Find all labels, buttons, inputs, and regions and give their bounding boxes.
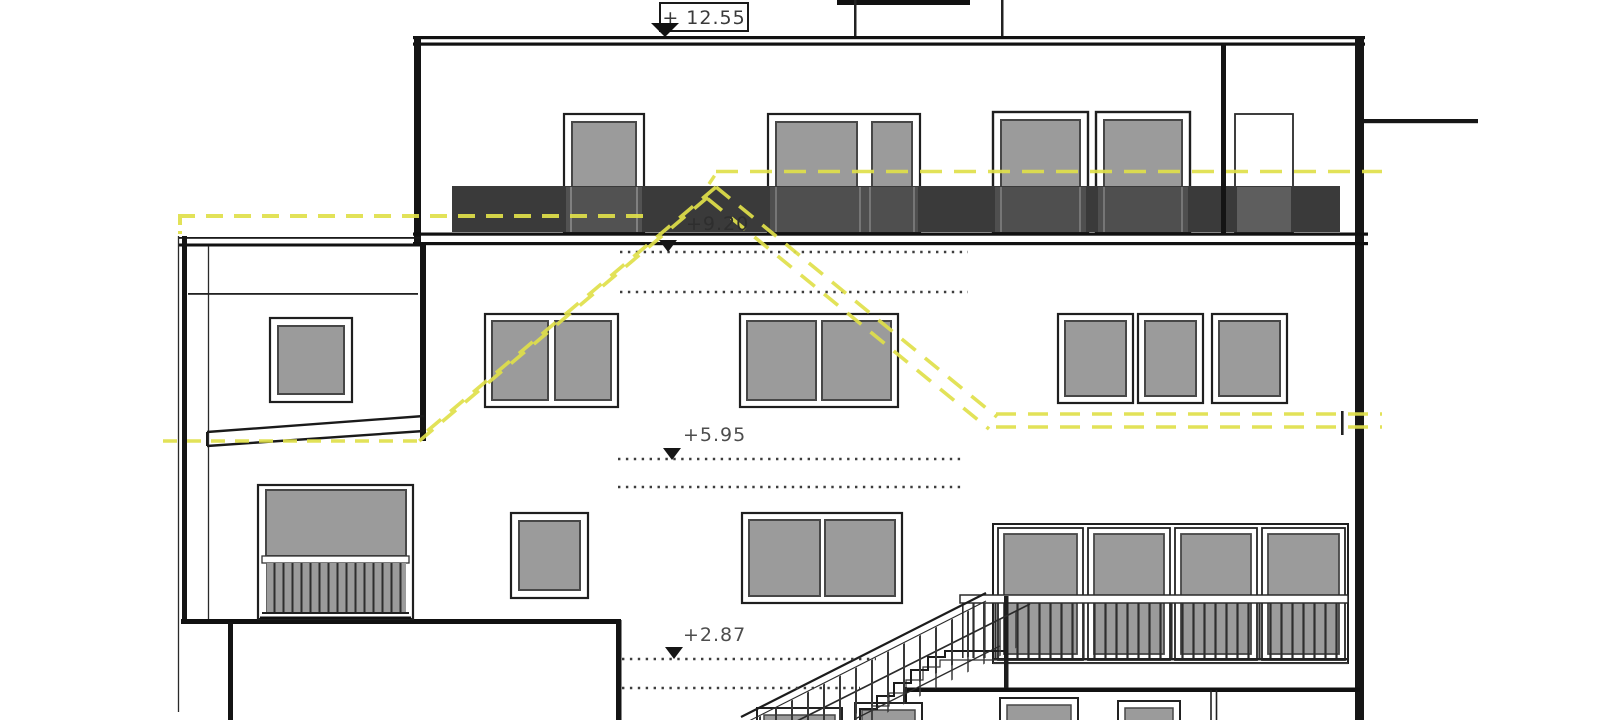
annex-balcony <box>258 485 413 619</box>
annex-window <box>270 318 352 402</box>
building-elevation-svg: + 12.55 +9.20 +5.95 +2.87 <box>0 0 1600 720</box>
level-attic-label: +9.20 <box>686 213 749 235</box>
level-roof: + 12.55 <box>651 3 748 37</box>
window-pair-3 <box>742 513 902 603</box>
roof-slab <box>413 36 1365 39</box>
window-pair-2 <box>740 314 898 407</box>
window-triple <box>1058 314 1287 403</box>
right-wall <box>1355 36 1364 720</box>
roof-structure-top-edge <box>837 0 970 5</box>
elevation-drawing-canvas: + 12.55 +9.20 +5.95 +2.87 <box>0 0 1600 720</box>
annex-balcony-balusters <box>266 563 406 613</box>
annex-left-wall <box>182 236 187 624</box>
level-upper-label: +5.95 <box>683 424 746 446</box>
annex-balcony-handrail <box>262 556 409 563</box>
right-dimension-tick <box>1341 411 1344 435</box>
annex-balcony-window <box>266 490 406 556</box>
level-ground-label: +2.87 <box>683 624 746 646</box>
ground-floor-top-edge <box>905 688 1360 693</box>
small-window <box>511 513 588 598</box>
neighbour-roof-line <box>1364 119 1478 123</box>
annex-roof-slab <box>179 237 421 239</box>
attic-floor-slab <box>413 233 1368 236</box>
annex-fascia-line <box>188 293 418 295</box>
upper-partition-wall <box>1221 44 1226 233</box>
terrace-parapet-band <box>452 186 1340 232</box>
balcony-handrail <box>960 595 1348 603</box>
right-balcony <box>960 524 1348 688</box>
